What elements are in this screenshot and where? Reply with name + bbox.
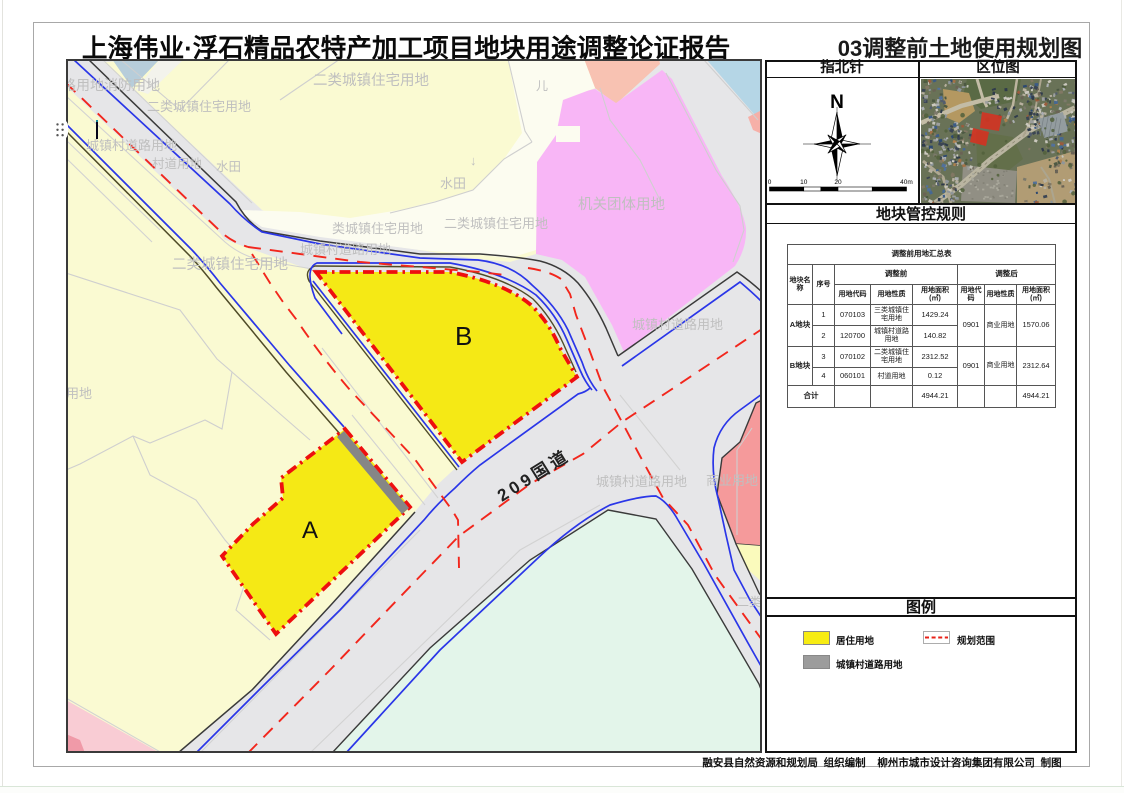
svg-text:10: 10 xyxy=(800,179,808,186)
svg-text:二类: 二类 xyxy=(737,595,761,609)
svg-text:A: A xyxy=(302,517,318,544)
svg-text:城镇村道路用地: 城镇村道路用地 xyxy=(632,317,723,332)
svg-text:城镇村道路用地: 城镇村道路用地 xyxy=(86,138,177,153)
svg-text:二类城镇住宅用地: 二类城镇住宅用地 xyxy=(313,72,429,89)
svg-text:二类城镇住宅用地: 二类城镇住宅用地 xyxy=(172,256,288,273)
svg-text:B: B xyxy=(455,321,472,351)
svg-text:用地: 用地 xyxy=(66,386,92,401)
svg-text:城镇村道路用地: 城镇村道路用地 xyxy=(300,242,391,257)
svg-text:二类城镇住宅用地: 二类城镇住宅用地 xyxy=(444,216,548,231)
svg-text:儿: 儿 xyxy=(536,79,548,93)
svg-text:20: 20 xyxy=(834,179,842,186)
svg-text:40m: 40m xyxy=(900,179,913,186)
svg-text:机关团体用地: 机关团体用地 xyxy=(578,196,665,213)
svg-text:路用地消防用地: 路用地消防用地 xyxy=(66,77,160,93)
svg-text:类城镇住宅用地: 类城镇住宅用地 xyxy=(332,221,423,236)
svg-text:N: N xyxy=(830,92,844,113)
svg-text:水田: 水田 xyxy=(440,176,466,191)
svg-text:水田: 水田 xyxy=(216,160,241,174)
svg-text:村道用地: 村道用地 xyxy=(152,157,203,171)
svg-text:商业用地: 商业用地 xyxy=(706,473,758,488)
svg-text:↓: ↓ xyxy=(470,153,477,168)
svg-text:城镇村道路用地: 城镇村道路用地 xyxy=(596,474,687,489)
svg-text:0: 0 xyxy=(768,179,772,186)
svg-text:二类城镇住宅用地: 二类城镇住宅用地 xyxy=(147,99,251,114)
